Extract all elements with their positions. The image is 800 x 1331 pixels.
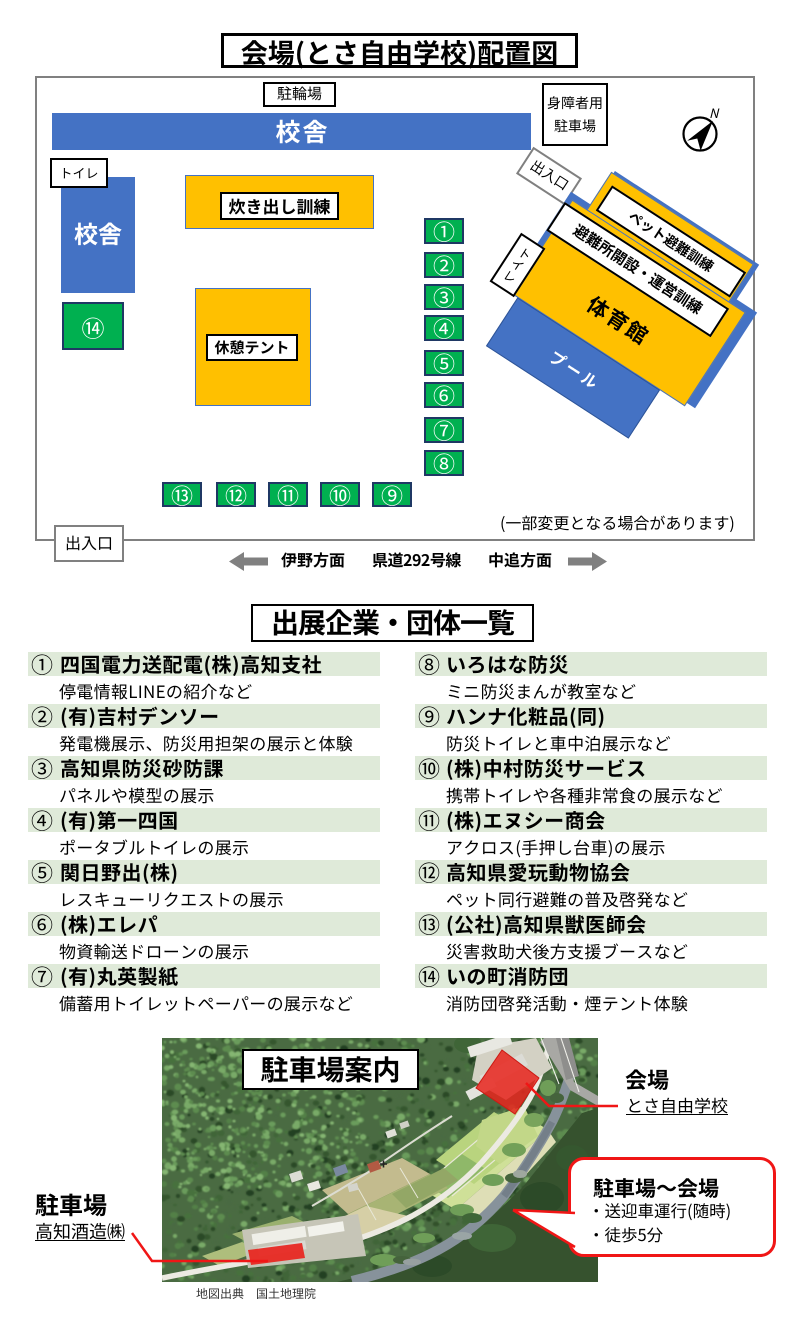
svg-text:N: N [709, 103, 720, 122]
